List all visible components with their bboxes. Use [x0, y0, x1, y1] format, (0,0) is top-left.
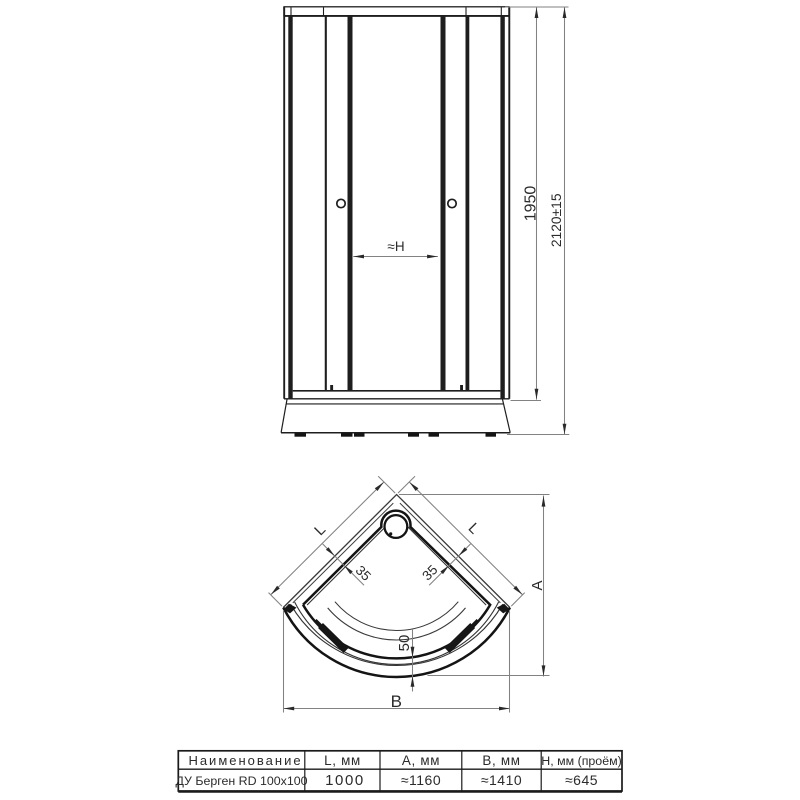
svg-text:50: 50 — [396, 635, 413, 652]
svg-text:А, мм: А, мм — [402, 753, 440, 768]
svg-text:≈1160: ≈1160 — [401, 772, 441, 788]
svg-text:1950: 1950 — [522, 186, 539, 222]
svg-text:2120±15: 2120±15 — [549, 193, 564, 247]
svg-text:≈H: ≈H — [387, 239, 404, 254]
svg-text:1000: 1000 — [325, 772, 365, 789]
svg-text:≈1410: ≈1410 — [481, 772, 522, 788]
svg-text:Наименование: Наименование — [188, 753, 302, 768]
svg-text:L, мм: L, мм — [324, 753, 361, 768]
svg-text:≈645: ≈645 — [565, 772, 598, 788]
svg-text:ДУ Берген RD 100х100: ДУ Берген RD 100х100 — [175, 774, 307, 788]
svg-text:A: A — [529, 580, 546, 590]
svg-text:B: B — [391, 692, 402, 711]
svg-text:В, мм: В, мм — [482, 753, 520, 768]
svg-text:Н, мм (проём): Н, мм (проём) — [541, 754, 621, 768]
